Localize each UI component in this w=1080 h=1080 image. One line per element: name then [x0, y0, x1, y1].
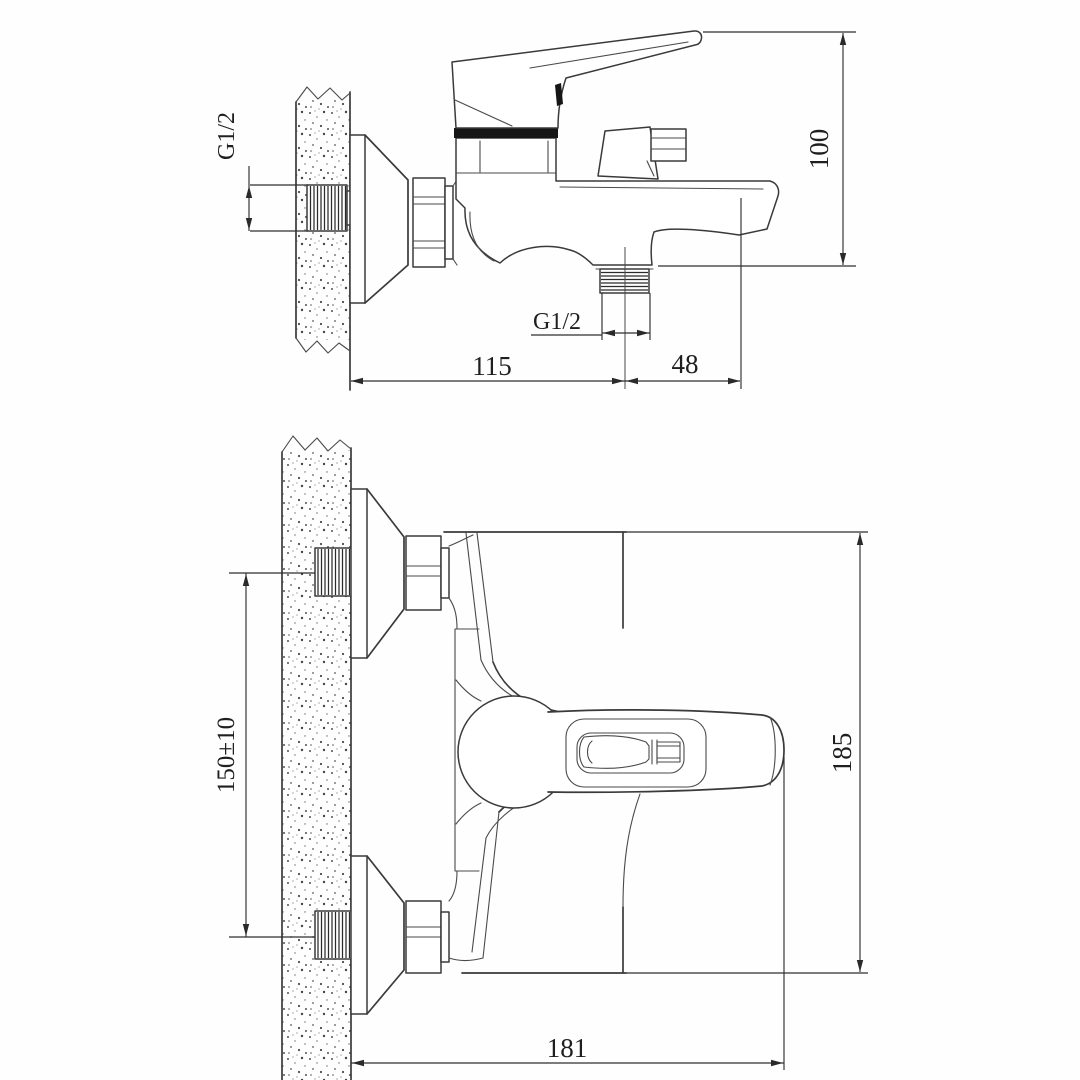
arrow-down-icon	[246, 218, 252, 230]
escutcheon-plate	[351, 856, 367, 1014]
arrow-down-icon	[857, 960, 863, 972]
dim-label-outlet-thread: G1/2	[533, 309, 581, 335]
wall-break-top	[282, 436, 351, 452]
dimension-outlet-thread: G1/2	[531, 293, 650, 340]
arrow-left-icon	[351, 378, 363, 384]
wall-hatch	[282, 450, 351, 1080]
escutcheon-cone	[365, 135, 408, 303]
escutcheon-cone	[367, 856, 404, 1014]
dim-label-115: 115	[472, 351, 512, 381]
wall-section-plan	[282, 436, 351, 1080]
escutcheon-plate	[351, 489, 367, 658]
faucet-installation-drawing: G1/2 100 115 48 G1/2	[0, 0, 1080, 1080]
arrow-down-icon	[840, 253, 846, 265]
nut-collar	[441, 548, 449, 598]
arrow-right-icon	[612, 378, 624, 384]
arrow-right-icon	[771, 1060, 783, 1066]
dim-label-181: 181	[547, 1033, 588, 1063]
dim-label-wall-thread: G1/2	[214, 112, 240, 160]
side-view: G1/2 100 115 48 G1/2	[214, 31, 856, 390]
dim-label-185: 185	[827, 733, 857, 774]
technical-drawing-canvas: G1/2 100 115 48 G1/2	[0, 0, 1080, 1080]
dimension-wall-thread: G1/2	[214, 112, 308, 231]
connection-nut	[413, 178, 445, 267]
dim-label-100: 100	[804, 129, 834, 170]
arrow-up-icon	[243, 574, 249, 586]
cartridge-band	[454, 128, 558, 138]
lever-handle-side	[452, 31, 702, 128]
arrow-up-icon	[857, 533, 863, 545]
wall-break-top	[296, 87, 350, 102]
nut-collar	[441, 912, 449, 962]
nut-collar	[445, 186, 453, 259]
arrow-left-icon	[626, 378, 638, 384]
escutcheon-plate	[350, 135, 365, 303]
wall-break-bottom	[296, 338, 350, 353]
arrow-right-icon	[728, 378, 740, 384]
diverter-cap	[651, 129, 686, 161]
outlet-thread	[596, 247, 653, 389]
body-waist-curve	[623, 794, 640, 907]
diverter-knob	[598, 127, 686, 179]
thread-body	[315, 548, 353, 596]
arrow-right-icon	[637, 330, 649, 336]
arrow-down-icon	[243, 924, 249, 936]
escutcheon-side	[350, 135, 457, 303]
arrow-up-icon	[840, 33, 846, 45]
plan-view: 150±10 185 181	[213, 436, 868, 1080]
wall-section	[296, 87, 350, 390]
escutcheon-cone	[367, 489, 404, 658]
lever-handle-plan	[536, 710, 784, 792]
dim-label-48: 48	[672, 349, 699, 379]
arrow-left-icon	[352, 1060, 364, 1066]
upper-arm	[466, 533, 493, 662]
wall-thread-body	[307, 185, 347, 231]
wall-fitting	[307, 185, 353, 231]
connection-nut	[406, 536, 441, 610]
lower-arm	[472, 812, 499, 958]
arrow-left-icon	[603, 330, 615, 336]
thread-body	[315, 911, 353, 959]
diverter-body	[598, 127, 658, 179]
dim-label-150: 150±10	[213, 717, 240, 793]
arrow-up-icon	[246, 186, 252, 198]
